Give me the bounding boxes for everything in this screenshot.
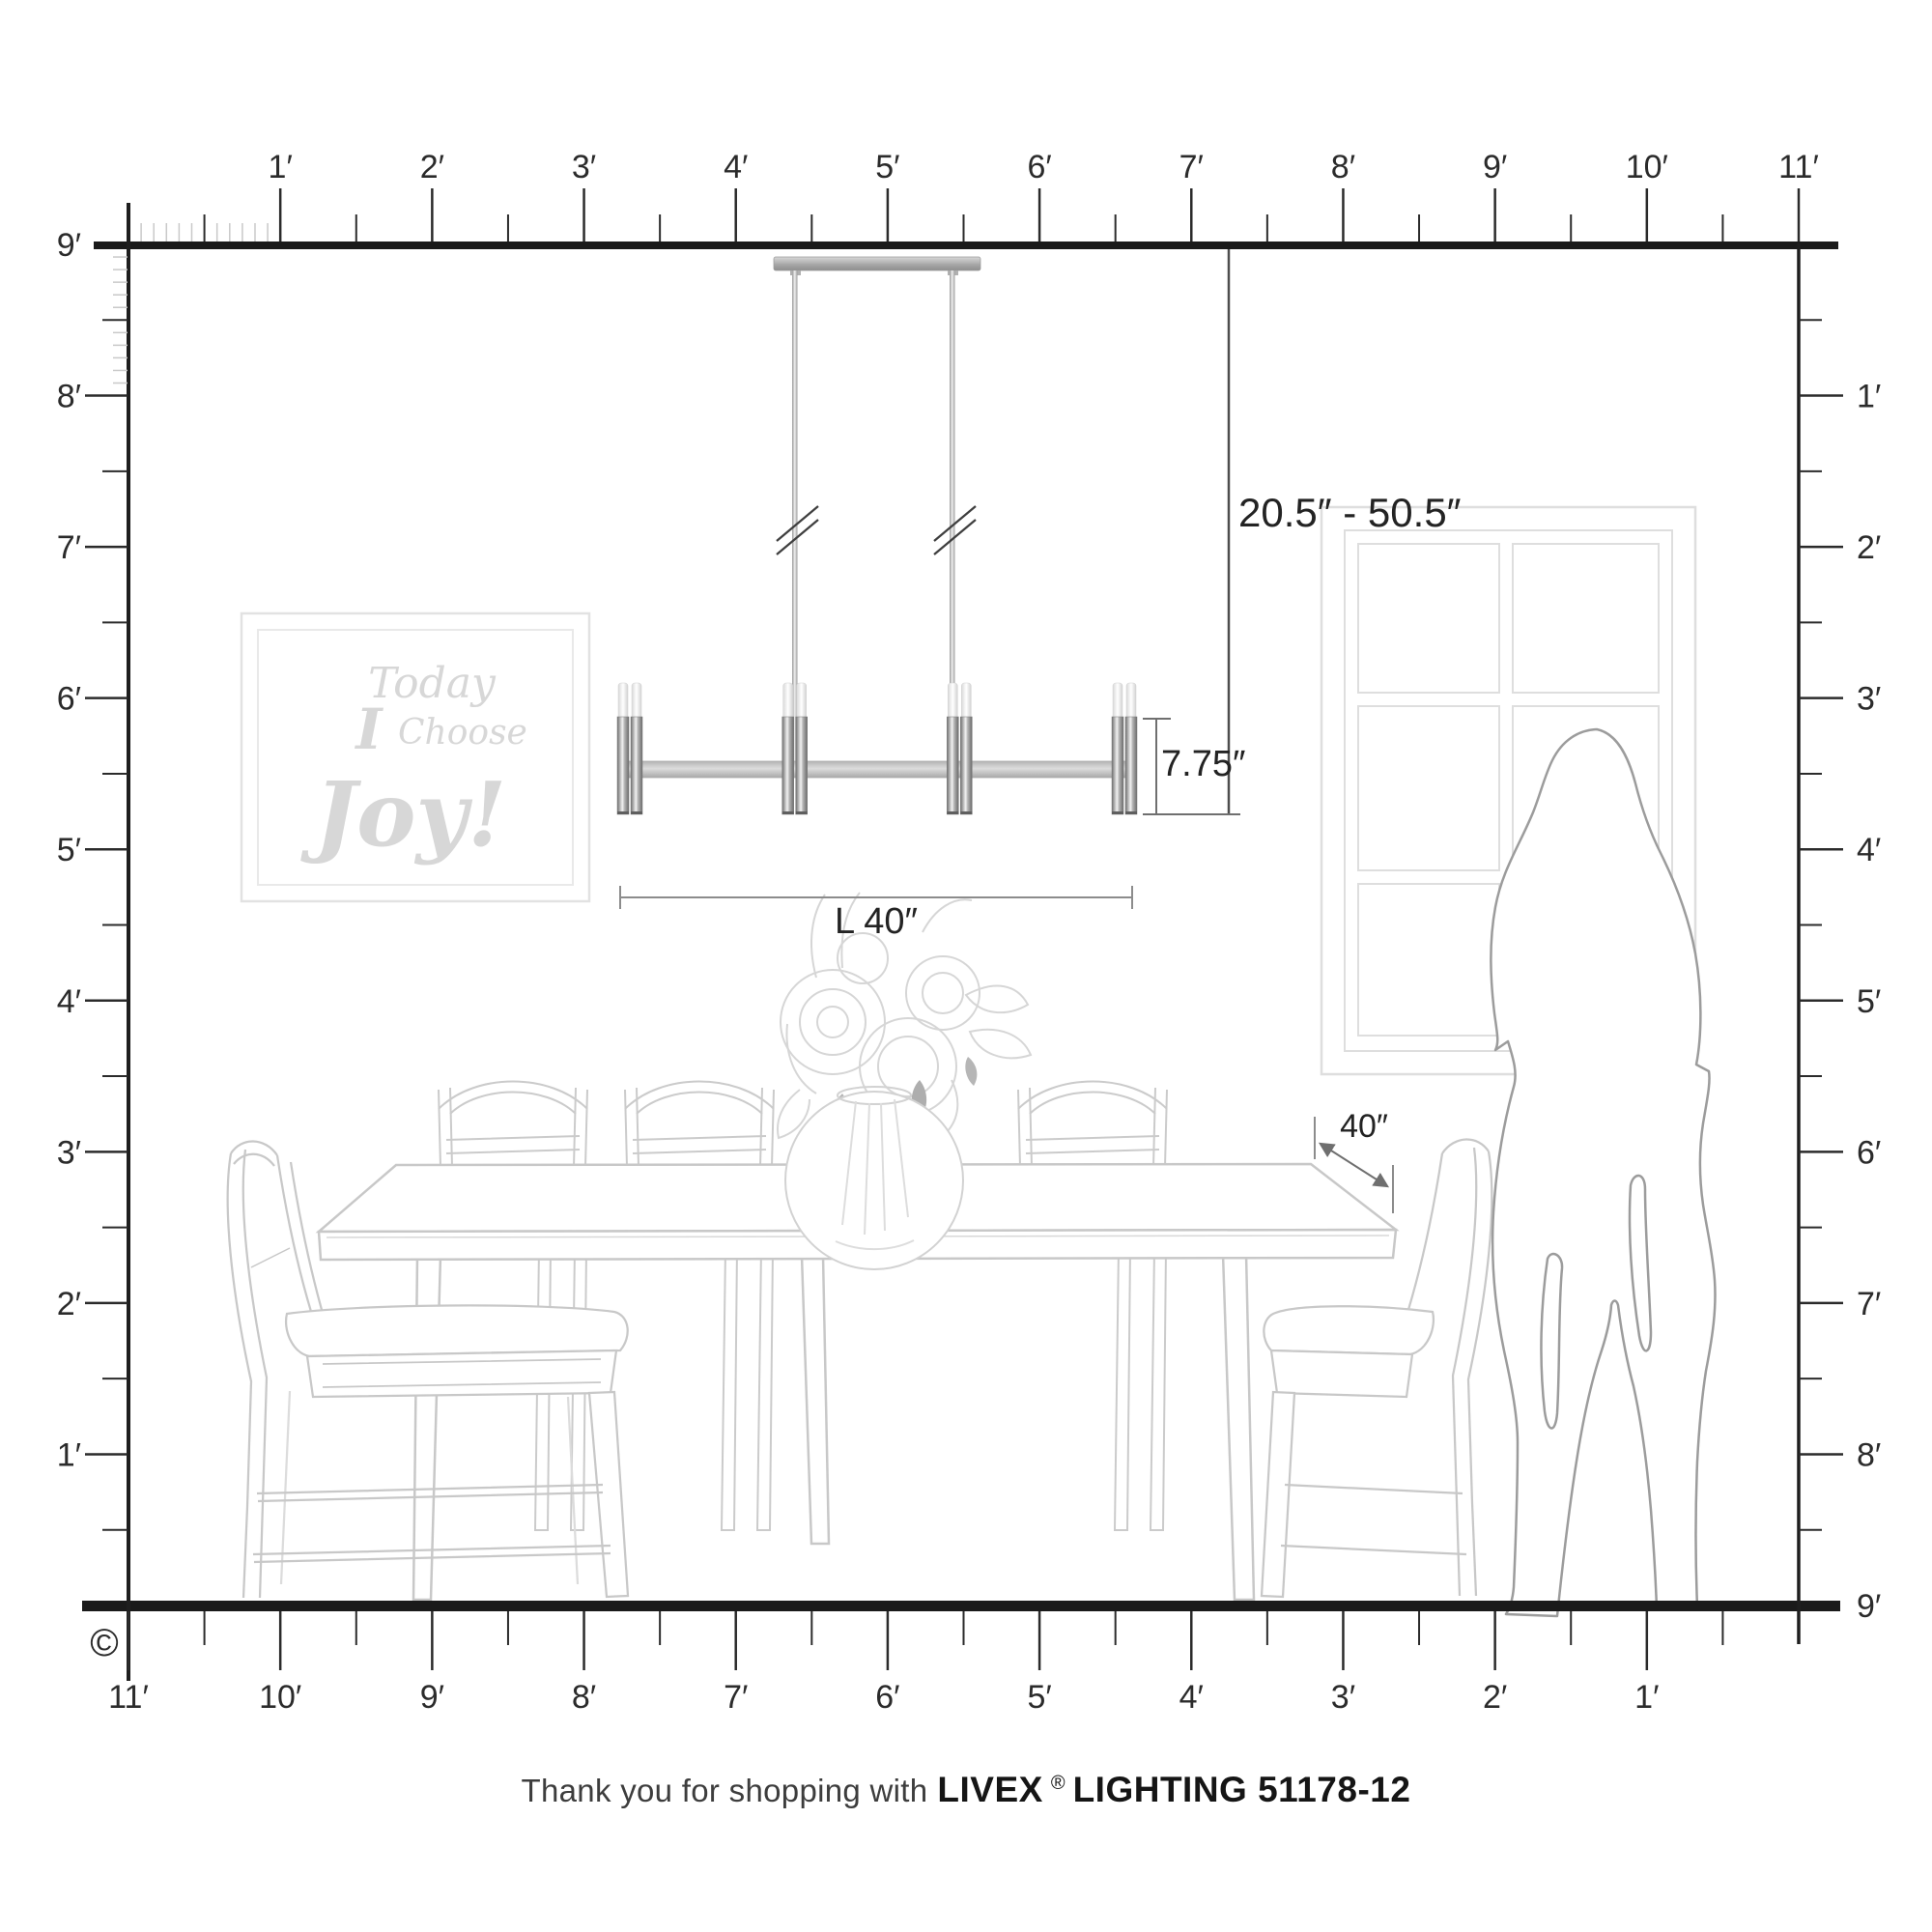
window-pane: [1358, 544, 1499, 693]
copyright-symbol: ©: [90, 1622, 118, 1664]
ceiling-ruler-line: [94, 241, 1838, 249]
chair-back-post: [1468, 1151, 1492, 1596]
top-ruler-label: 8′: [1331, 149, 1355, 185]
top-ruler-label: 5′: [875, 149, 899, 185]
candle-cylinder: [796, 717, 808, 814]
right-ruler-label: 1′: [1857, 379, 1881, 415]
bottom-ruler-label: 7′: [724, 1679, 748, 1716]
left-ruler-label: 9′: [57, 227, 81, 264]
back-chair-part: [1030, 1093, 1155, 1115]
left-ruler-label: 2′: [57, 1286, 81, 1322]
registered-trademark-icon: ®: [1051, 1773, 1065, 1795]
chair-seat-cushion: [286, 1305, 628, 1356]
leaf-accent: [965, 1057, 977, 1086]
frosted-glass-tip: [961, 683, 971, 720]
peony-flower: [781, 970, 885, 1074]
cylinder-base-cap: [782, 811, 794, 814]
leaf: [923, 899, 972, 932]
right-ruler-label: 3′: [1857, 681, 1881, 718]
bottom-ruler-label: 5′: [1027, 1679, 1051, 1716]
top-ruler-label: 9′: [1483, 149, 1507, 185]
chair-stretcher: [1281, 1485, 1466, 1554]
bottom-ruler-label: 8′: [572, 1679, 596, 1716]
bottom-ruler-label: 6′: [875, 1679, 899, 1716]
cylinder-base-cap: [1125, 811, 1137, 814]
dimension-fixture-length: L 40″: [835, 901, 918, 942]
top-ruler-label: 6′: [1027, 149, 1051, 185]
cylinder-base-cap: [796, 811, 808, 814]
vase: [785, 1092, 963, 1269]
wall-art-line2-lead: I: [354, 696, 384, 762]
table-leg: [802, 1256, 829, 1544]
chair-top-rail: [1442, 1139, 1489, 1153]
back-chair-part: [1026, 1136, 1159, 1153]
left-ruler-label: 3′: [57, 1134, 81, 1171]
peony-flower: [800, 989, 866, 1055]
back-chair-part: [446, 1136, 580, 1153]
candle-clusters: [617, 683, 1137, 814]
candle-cluster: [1112, 683, 1137, 814]
chair-seat-frame: [1271, 1350, 1412, 1397]
right-ruler-label: 8′: [1857, 1436, 1881, 1473]
cylinder-base-cap: [631, 811, 642, 814]
back-chair-part: [722, 1248, 737, 1530]
frosted-glass-tip: [632, 683, 641, 720]
leaf: [970, 1030, 1031, 1058]
back-chair: [625, 1082, 785, 1531]
back-chair-part: [637, 1093, 762, 1115]
footer-prefix: Thank you for shopping with: [522, 1773, 928, 1809]
peony-flower: [923, 973, 963, 1013]
woman-outline: [1491, 729, 1715, 1616]
bottom-ruler-label: 4′: [1179, 1679, 1204, 1716]
bottom-ruler-label: 10′: [259, 1679, 301, 1716]
frosted-glass-tip: [948, 683, 957, 720]
candle-cluster: [947, 683, 972, 814]
window-pane: [1358, 706, 1499, 870]
table-leg: [1223, 1254, 1254, 1600]
right-ruler-label: 7′: [1857, 1286, 1881, 1322]
wall-art-line2-rest: Choose: [398, 713, 527, 753]
right-ruler-label: 2′: [1857, 529, 1881, 566]
wall-art: Today I Choose Joy!: [241, 613, 589, 901]
candle-cylinder: [631, 717, 642, 814]
frosted-glass-tip: [1113, 683, 1122, 720]
left-ruler-label: 5′: [57, 832, 81, 868]
chair-top-rail: [234, 1154, 274, 1166]
candle-cylinder: [947, 717, 958, 814]
candle-cylinder: [1112, 717, 1123, 814]
right-ruler-label: 9′: [1857, 1588, 1881, 1625]
scale-diagram: Today I Choose Joy!: [0, 0, 1932, 1932]
dimension-hanging-range: 20.5″ - 50.5″: [1238, 490, 1462, 535]
floor-ruler-line: [82, 1601, 1840, 1611]
left-ruler-label: 7′: [57, 529, 81, 566]
chair-seat-cushion: [1264, 1306, 1434, 1354]
chair-front-leg: [1262, 1392, 1294, 1597]
size-chart-page: Today I Choose Joy!: [0, 0, 1932, 1932]
left-ruler-label: 4′: [57, 983, 81, 1020]
back-chair-part: [450, 1093, 576, 1115]
top-ruler-label: 7′: [1179, 149, 1204, 185]
dimension-fixture-height: 7.75″: [1161, 744, 1245, 784]
woman-silhouette: [1491, 729, 1715, 1616]
chair-back-post: [228, 1153, 251, 1598]
candle-cluster: [617, 683, 642, 814]
back-chair-part: [633, 1136, 766, 1153]
top-ruler-label: 10′: [1626, 149, 1668, 185]
wall-art-line1: Today: [368, 659, 497, 708]
frosted-glass-tip: [1126, 683, 1136, 720]
cylinder-base-cap: [947, 811, 958, 814]
left-ruler-label: 6′: [57, 681, 81, 718]
right-ruler-label: 4′: [1857, 832, 1881, 868]
dimension-table-depth: 40″: [1340, 1108, 1388, 1145]
chair-far-leg: [281, 1391, 290, 1584]
frosted-glass-tip: [783, 683, 793, 720]
wall-art-line3: Joy!: [300, 762, 507, 867]
chandelier: [617, 257, 1137, 814]
chair-front-leg: [589, 1392, 628, 1597]
chair-back-brace: [251, 1248, 290, 1267]
fixture-arm-bar: [623, 761, 1130, 778]
frosted-glass-tip: [618, 683, 628, 720]
rod-break-marks: [777, 506, 976, 554]
top-ruler-label: 4′: [724, 149, 748, 185]
candle-cylinder: [1125, 717, 1137, 814]
bottom-ruler-label: 1′: [1634, 1679, 1659, 1716]
cylinder-base-cap: [960, 811, 972, 814]
cylinder-base-cap: [617, 811, 629, 814]
top-ruler-label: 3′: [572, 149, 596, 185]
bottom-ruler-label: 2′: [1483, 1679, 1507, 1716]
frosted-glass-tip: [797, 683, 807, 720]
peony-flower: [817, 1007, 848, 1037]
candle-cylinder: [960, 717, 972, 814]
dimension-annotations: 20.5″ - 50.5″ 7.75″ L 40″ 40″: [620, 249, 1462, 1213]
footer-brand: LIVEX: [937, 1770, 1042, 1810]
cylinder-base-cap: [1112, 811, 1123, 814]
right-ruler-label: 5′: [1857, 983, 1881, 1020]
bottom-ruler-label: 11′: [108, 1679, 149, 1716]
window-pane: [1358, 884, 1499, 1036]
window-pane: [1513, 544, 1659, 693]
left-ruler-label: 8′: [57, 379, 81, 415]
back-chair: [1018, 1082, 1179, 1531]
candle-cylinder: [782, 717, 794, 814]
right-ruler-label: 6′: [1857, 1134, 1881, 1171]
back-chair-part: [757, 1248, 773, 1530]
candle-cylinder: [617, 717, 629, 814]
stem: [811, 895, 825, 978]
footer-note: Thank you for shopping with LIVEX ® LIGH…: [0, 1770, 1932, 1810]
top-ruler-label: 1′: [269, 149, 293, 185]
top-ruler-label: 2′: [420, 149, 444, 185]
back-chair-part: [1151, 1248, 1166, 1530]
chair-seat-frame: [307, 1350, 616, 1397]
left-ruler-label: 1′: [57, 1436, 81, 1473]
back-chair-part: [1115, 1248, 1130, 1530]
footer-model-number: LIGHTING 51178-12: [1073, 1770, 1411, 1810]
ceiling-canopy: [774, 257, 980, 270]
bottom-ruler-label: 9′: [420, 1679, 444, 1716]
top-ruler-label: 11′: [1778, 149, 1819, 185]
bottom-ruler-label: 3′: [1331, 1679, 1355, 1716]
